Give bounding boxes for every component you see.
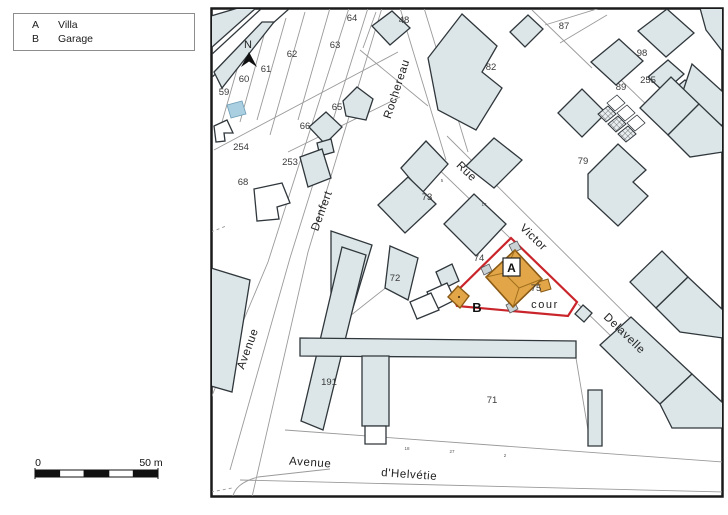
parcel-number-48: 48 — [399, 15, 410, 26]
map-shape — [84, 470, 109, 477]
parcel-number-71: 71 — [487, 395, 498, 406]
parcel-number-82: 82 — [486, 62, 497, 73]
map-shape — [60, 470, 85, 477]
map-shape — [588, 390, 602, 446]
parcel-number-255: 255 — [640, 75, 656, 86]
house-number-18: 18 — [404, 446, 410, 451]
parcel-number-68: 68 — [238, 177, 249, 188]
parcel-number-98: 98 — [637, 48, 648, 59]
parcel-number-253: 253 — [282, 157, 298, 168]
parcel-number-89: 89 — [616, 82, 627, 93]
parcel-number-64: 64 — [347, 13, 358, 24]
parcel-number-62: 62 — [287, 49, 298, 60]
parcel-number-79: 79 — [578, 156, 589, 167]
north-label: N — [244, 39, 252, 51]
map-shape — [362, 356, 389, 426]
parcel-number-254: 254 — [233, 142, 249, 153]
garage-dot — [458, 296, 460, 298]
scale-bar: 0 50 m — [35, 457, 163, 479]
scale-zero: 0 — [35, 457, 41, 469]
map-shape — [300, 338, 576, 358]
house-number-27: 27 — [449, 449, 455, 454]
garage-label: B — [472, 300, 481, 315]
map-page: A Villa B Garage — [0, 0, 728, 515]
villa-label: A — [507, 261, 516, 275]
map-shape — [35, 470, 60, 477]
parcel-number-66: 66 — [300, 121, 311, 132]
map-shape — [365, 426, 386, 444]
scale-segments — [35, 468, 158, 479]
map-shape — [133, 470, 158, 477]
courtyard-label: cour — [531, 299, 559, 311]
map-shape — [109, 470, 134, 477]
parcel-number-60: 60 — [239, 74, 250, 85]
parcel-number-87: 87 — [559, 21, 570, 32]
parcel-number-191: 191 — [321, 377, 337, 388]
parcel-number-72: 72 — [390, 273, 401, 284]
scale-end: 50 m — [139, 457, 163, 469]
parcel-number-65: 65 — [332, 102, 343, 113]
parcel-number-59: 59 — [219, 87, 230, 98]
parcel-number-74: 74 — [474, 253, 485, 264]
parcel-number-75: 75 — [531, 283, 542, 294]
house-number-17: 17 — [481, 202, 487, 207]
parcel-number-61: 61 — [261, 64, 272, 75]
cadastral-map: A B cour RochereauDenfertAvenueRueVictor… — [0, 0, 728, 515]
parcel-number-63: 63 — [330, 40, 341, 51]
parcel-number-73: 73 — [422, 192, 433, 203]
